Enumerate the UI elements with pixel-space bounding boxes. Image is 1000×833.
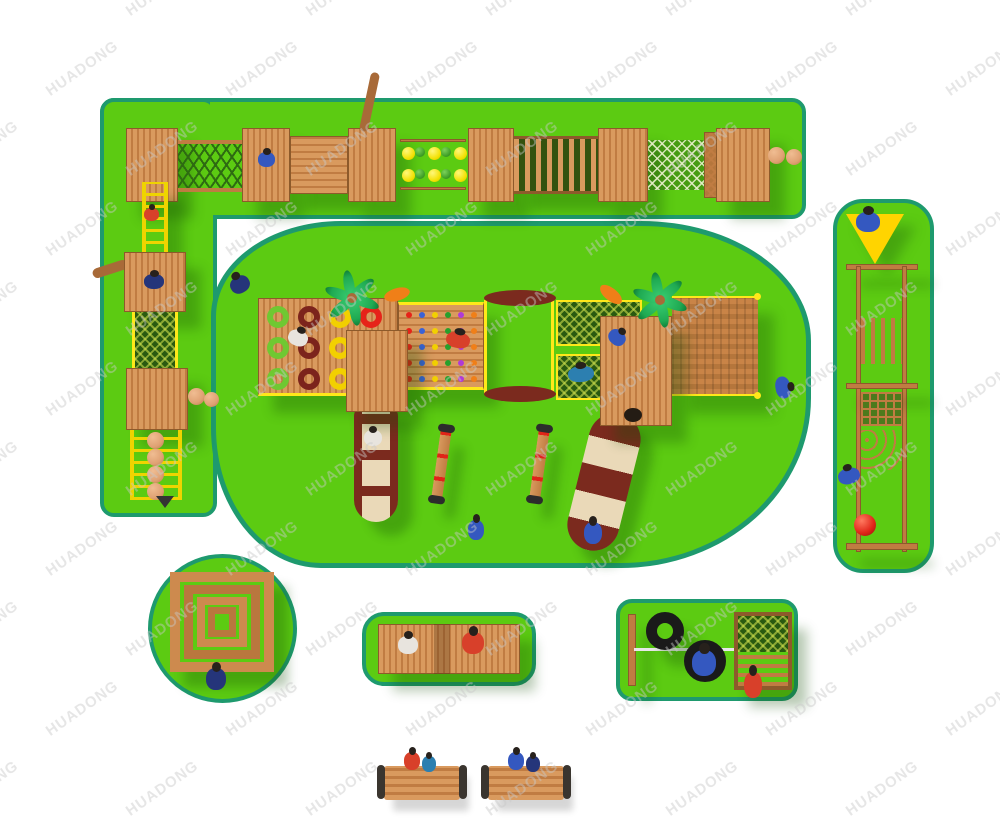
mat-corner-join2 [210,102,218,215]
climb-hold [406,328,412,334]
pyramid-frame-1 [170,572,274,672]
watermark-text: HUADONG [663,117,742,179]
stepping-disc [428,147,441,160]
climb-hold [471,376,477,382]
watermark-text: HUADONG [483,757,562,819]
stepper-ball [147,432,164,449]
kid-standing-blob [468,520,484,540]
watermark-text: HUADONG [43,357,122,419]
kid-on-bench-1b [422,756,436,772]
watermark-text: HUADONG [583,37,662,99]
palm-leaf [328,292,357,321]
play-ring [267,306,289,328]
step-ball-2 [786,149,802,165]
watermark-text: HUADONG [843,0,922,20]
strip-shelf [846,383,918,389]
strip-rail-left [856,266,861,552]
watermark-text: HUADONG [843,597,922,659]
watermark-text: HUADONG [483,597,562,659]
play-ring [360,337,382,359]
stepping-disc [454,147,467,160]
net-ramp-2 [556,354,642,400]
net-tunnel-vertical [132,312,178,370]
watermark-text: HUADONG [763,357,842,419]
stepping-disc [454,169,467,182]
watermark-text: HUADONG [483,277,562,339]
climb-hold [458,344,464,350]
tire-2 [684,640,726,682]
watermark-text: HUADONG [583,677,662,739]
climb-hold [445,344,451,350]
watermark-text: HUADONG [223,517,302,579]
kid-in-slide [364,430,382,446]
climb-wall [398,302,484,390]
palm-leaf [636,294,665,323]
climb-hold [432,328,438,334]
watermark-text: HUADONG [583,517,662,579]
watermark-text: HUADONG [0,597,22,659]
bench-2 [488,766,564,800]
strip-loops [861,430,902,470]
tire-1 [646,612,684,650]
palm-trunk [655,295,665,305]
arch-bottom [484,386,556,402]
slat-bridge [514,136,598,194]
watermark-text: HUADONG [943,517,1000,579]
watermark-text: HUADONG [483,437,562,499]
disc-bridge-rail-bottom [400,187,466,190]
platform-f [716,128,770,202]
wide-climb-ramp [672,296,758,396]
stepping-disc [441,169,451,179]
palm-leaf [349,293,381,311]
watermark-text: HUADONG [403,357,482,419]
watermark-text: HUADONG [123,757,202,819]
watermark-text: HUADONG [583,197,662,259]
watermark-text: HUADONG [123,0,202,20]
watermark-text: HUADONG [843,757,922,819]
play-ring [360,306,382,328]
watermark-text: HUADONG [43,37,122,99]
watermark-text: HUADONG [943,677,1000,739]
watermark-text: HUADONG [303,117,382,179]
stepper-ball [147,483,164,500]
watermark-text: HUADONG [583,357,662,419]
playground-render: HUADONGHUADONGHUADONGHUADONGHUADONGHUADO… [0,0,1000,833]
watermark-text: HUADONG [663,277,742,339]
kid-on-rings [286,327,310,349]
watermark-text: HUADONG [403,677,482,739]
net-ramp-1 [556,300,642,346]
stepping-disc [402,169,415,182]
palm-leaf [632,287,664,305]
climb-hold [445,312,451,318]
strip-crossbar-top [846,264,918,270]
watermark-text: HUADONG [843,277,922,339]
platform-ball-1 [188,388,205,405]
climb-hold [471,360,477,366]
kid-at-pyramid [206,668,226,690]
strip-rail-right [902,266,907,552]
step-ball-1 [768,147,785,164]
climb-hold [432,344,438,350]
kid-in-net-ramp [567,365,594,383]
watermark-text: HUADONG [0,277,22,339]
kid-on-bench-2b [526,756,540,772]
play-ring [329,306,351,328]
branch-left [91,259,128,280]
kid-on-strip [836,465,861,486]
net-frame [734,612,792,690]
watermark-text: HUADONG [223,357,302,419]
chain-net-bridge [648,140,706,190]
watermark-text: HUADONG [403,197,482,259]
watermark-text: HUADONG [43,197,122,259]
palm-leaf [347,275,376,304]
climb-hold [458,312,464,318]
play-ring [267,337,289,359]
wide-deck [378,624,520,674]
climb-hold [419,376,425,382]
net-frame-top [738,616,788,652]
watermark-text: HUADONG [843,437,922,499]
kid-hanging-net [744,672,762,698]
stepper-balls [130,430,182,500]
climb-hold [471,344,477,350]
pyramid-frame-4 [208,607,236,637]
mat-central-blob [211,221,811,568]
bench-1 [384,766,460,800]
play-ring [298,306,320,328]
stepping-disc [428,169,441,182]
ring-panel [258,298,398,396]
straight-tube-slide [354,406,398,522]
palm-tree-2 [628,268,692,332]
climb-hold [406,360,412,366]
kid-exiting-slide [584,522,602,544]
orange-leaf-1 [382,283,411,306]
climb-hold [445,328,451,334]
watermark-text: HUADONG [303,437,382,499]
mat-top-band [100,98,806,219]
pyramid-frame-2 [184,585,260,659]
stepping-disc [441,147,451,157]
kid-on-bench-1a [404,752,420,770]
watermark-text: HUADONG [483,0,562,20]
kid-right-of-ramp [774,375,793,399]
branch-pole [359,72,380,133]
watermark-text: HUADONG [123,277,202,339]
play-ring [329,368,351,390]
climb-hold [445,376,451,382]
mat-left-arm [100,98,217,517]
climb-hold [471,312,477,318]
palm-leaf [655,277,684,306]
tree-platform-1 [124,252,186,312]
palm-leaf [324,285,356,303]
climb-hold [406,376,412,382]
mat-right-rect [616,599,798,701]
watermark-layer: HUADONGHUADONGHUADONGHUADONGHUADONGHUADO… [0,0,1000,833]
kid-on-triangle [856,212,880,232]
climb-hold [406,344,412,350]
watermark-text: HUADONG [663,757,742,819]
platform-d [468,128,514,202]
strip-rung-panel [861,318,902,364]
climb-hold [458,360,464,366]
stepping-disc [402,147,415,160]
watermark-text: HUADONG [303,597,382,659]
watermark-text: HUADONG [303,757,382,819]
kid-on-tower-2 [605,326,628,349]
balance-beam-2 [529,428,550,501]
watermark-text: HUADONG [763,677,842,739]
watermark-text: HUADONG [0,757,22,819]
stepper-ladder [130,430,182,500]
play-ring [329,337,351,359]
kid-on-ladder [144,208,159,221]
stepper-ball [147,449,164,466]
climb-hold [445,360,451,366]
orange-leaf-2 [596,282,625,306]
climb-hold [419,360,425,366]
watermark-text: HUADONG [303,0,382,20]
watermark-text: HUADONG [763,37,842,99]
strip-crossbar-bottom [846,543,918,550]
platform-e [598,128,648,202]
platform-a [126,128,178,202]
rope-bridge [178,140,242,192]
disc-bridge [400,141,466,189]
kid-on-tree-platform [144,274,164,289]
palm-leaf [657,295,689,313]
kid-on-deck-2 [462,632,484,654]
spiral-tube-slide [562,408,646,556]
palm-leaf [648,271,666,303]
pyramid-frame-3 [197,597,247,647]
climb-hold [432,360,438,366]
ramp-pole-1 [754,293,761,300]
disc-bridge-rail-top [400,139,466,142]
end-flag [156,496,174,508]
platform-b [242,128,290,202]
watermark-text: HUADONG [43,517,122,579]
climb-hold [458,376,464,382]
play-ring [267,368,289,390]
strip-grid-net [861,392,902,426]
watermark-text: HUADONG [943,37,1000,99]
climb-hold [419,312,425,318]
palm-leaf [654,297,672,329]
arch-top [484,290,556,306]
swing-wire [634,648,736,651]
play-ring [298,337,320,359]
tree-platform-2 [126,368,188,430]
watermark-text: HUADONG [0,0,22,20]
watermark-text: HUADONG [403,517,482,579]
climb-hold [432,312,438,318]
palm-tree-1 [322,268,382,328]
climb-hold [458,328,464,334]
platform-ball-2 [204,392,219,407]
tower-2-hatch [624,408,642,422]
watermark-text: HUADONG [403,37,482,99]
kid-in-tire [692,650,716,676]
mat-corner-join [104,211,213,220]
watermark-text: HUADONG [763,517,842,579]
watermark-text: HUADONG [763,197,842,259]
kid-on-platform-b [258,152,275,167]
lattice-panel [704,132,718,198]
watermark-text: HUADONG [43,677,122,739]
ramp-pole-2 [754,392,761,399]
net-frame-rungs [738,654,788,686]
climb-hold [471,328,477,334]
watermark-text: HUADONG [663,0,742,20]
kid-on-climb-wall [445,330,471,350]
stepping-disc [415,169,425,179]
kid-blob-edge [227,272,253,297]
palm-leaf [340,269,358,301]
watermark-text: HUADONG [0,437,22,499]
watermark-text: HUADONG [663,437,742,499]
watermark-text: HUADONG [223,677,302,739]
watermark-text: HUADONG [483,117,562,179]
stepping-disc [415,147,425,157]
mat-mid-rect [362,612,536,686]
watermark-text: HUADONG [123,437,202,499]
watermark-text: HUADONG [0,117,22,179]
red-ball [854,514,876,536]
watermark-text: HUADONG [123,117,202,179]
kid-on-bench-2a [508,752,524,770]
watermark-text: HUADONG [303,277,382,339]
swing-post [628,614,636,686]
log-bridge [290,136,348,194]
arch-bridge [484,300,554,394]
climb-hold [432,376,438,382]
climb-hold [419,344,425,350]
watermark-text: HUADONG [943,197,1000,259]
watermark-text: HUADONG [223,37,302,99]
kid-on-deck-1 [398,636,418,654]
watermark-text: HUADONG [943,357,1000,419]
deck-gap [434,624,450,674]
mat-right-strip [833,199,934,573]
palm-trunk [347,293,357,303]
watermark-text: HUADONG [663,597,742,659]
balance-beam-1 [431,428,452,501]
climb-hold [406,312,412,318]
slide-tower-1 [346,330,408,412]
slide-tower-2 [600,316,672,426]
palm-leaf [346,295,364,327]
yellow-ladder [142,182,168,268]
climb-hold [419,328,425,334]
platform-c [348,128,396,202]
watermark-text: HUADONG [123,597,202,659]
watermark-text: HUADONG [843,117,922,179]
mat-circle [148,554,297,703]
triangle-climber [846,214,904,264]
play-ring [360,368,382,390]
play-ring [298,368,320,390]
watermark-text: HUADONG [223,197,302,259]
stepper-ball [147,466,164,483]
